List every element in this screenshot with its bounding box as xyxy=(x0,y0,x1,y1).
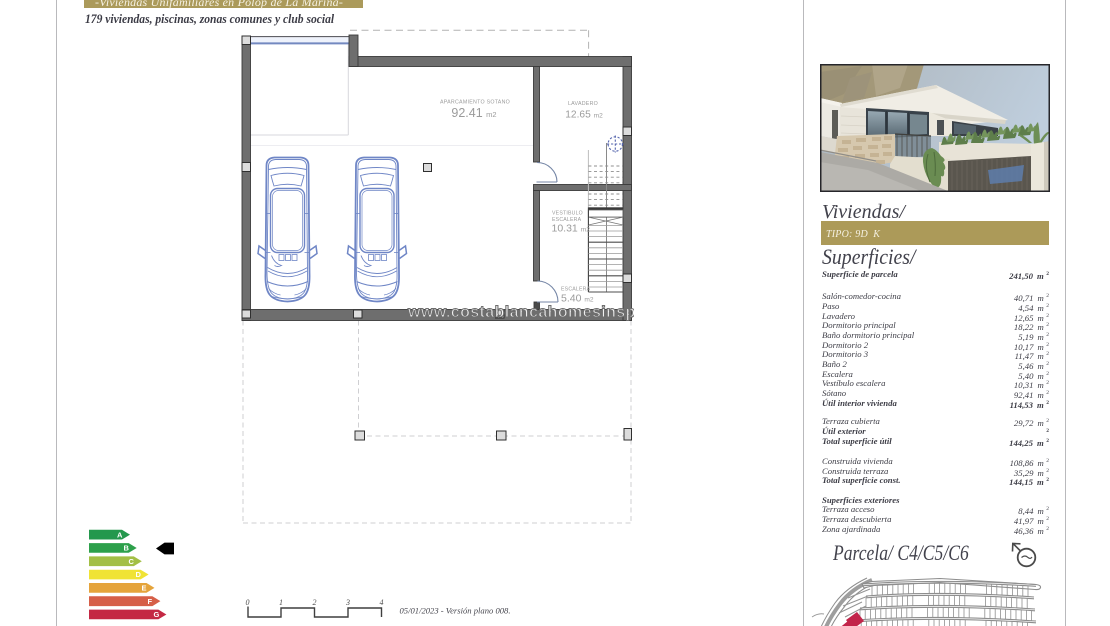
svg-text:E: E xyxy=(142,584,147,593)
svg-text:0: 0 xyxy=(246,598,250,607)
svg-text:2: 2 xyxy=(313,598,317,607)
svg-text:F: F xyxy=(148,597,153,606)
svg-text:12.65 m2: 12.65 m2 xyxy=(565,110,603,121)
svg-text:LAVADERO: LAVADERO xyxy=(568,101,598,107)
svg-text:VESTIBULO: VESTIBULO xyxy=(552,211,583,217)
svg-text:4: 4 xyxy=(380,598,384,607)
svg-text:APARCAMIENTO SOTANO: APARCAMIENTO SOTANO xyxy=(440,100,510,106)
svg-text:C: C xyxy=(129,557,135,566)
svg-text:D: D xyxy=(136,570,142,579)
svg-text:10.31 m2: 10.31 m2 xyxy=(552,223,591,235)
svg-text:G: G xyxy=(154,610,160,619)
svg-text:A: A xyxy=(117,530,123,539)
svg-text:1: 1 xyxy=(279,598,283,607)
svg-text:92.41 m2: 92.41 m2 xyxy=(451,106,496,120)
svg-text:3: 3 xyxy=(345,598,350,607)
svg-text:B: B xyxy=(124,544,130,553)
svg-text:05/01/2023 - Versión plano 008: 05/01/2023 - Versión plano 008. xyxy=(400,606,511,616)
